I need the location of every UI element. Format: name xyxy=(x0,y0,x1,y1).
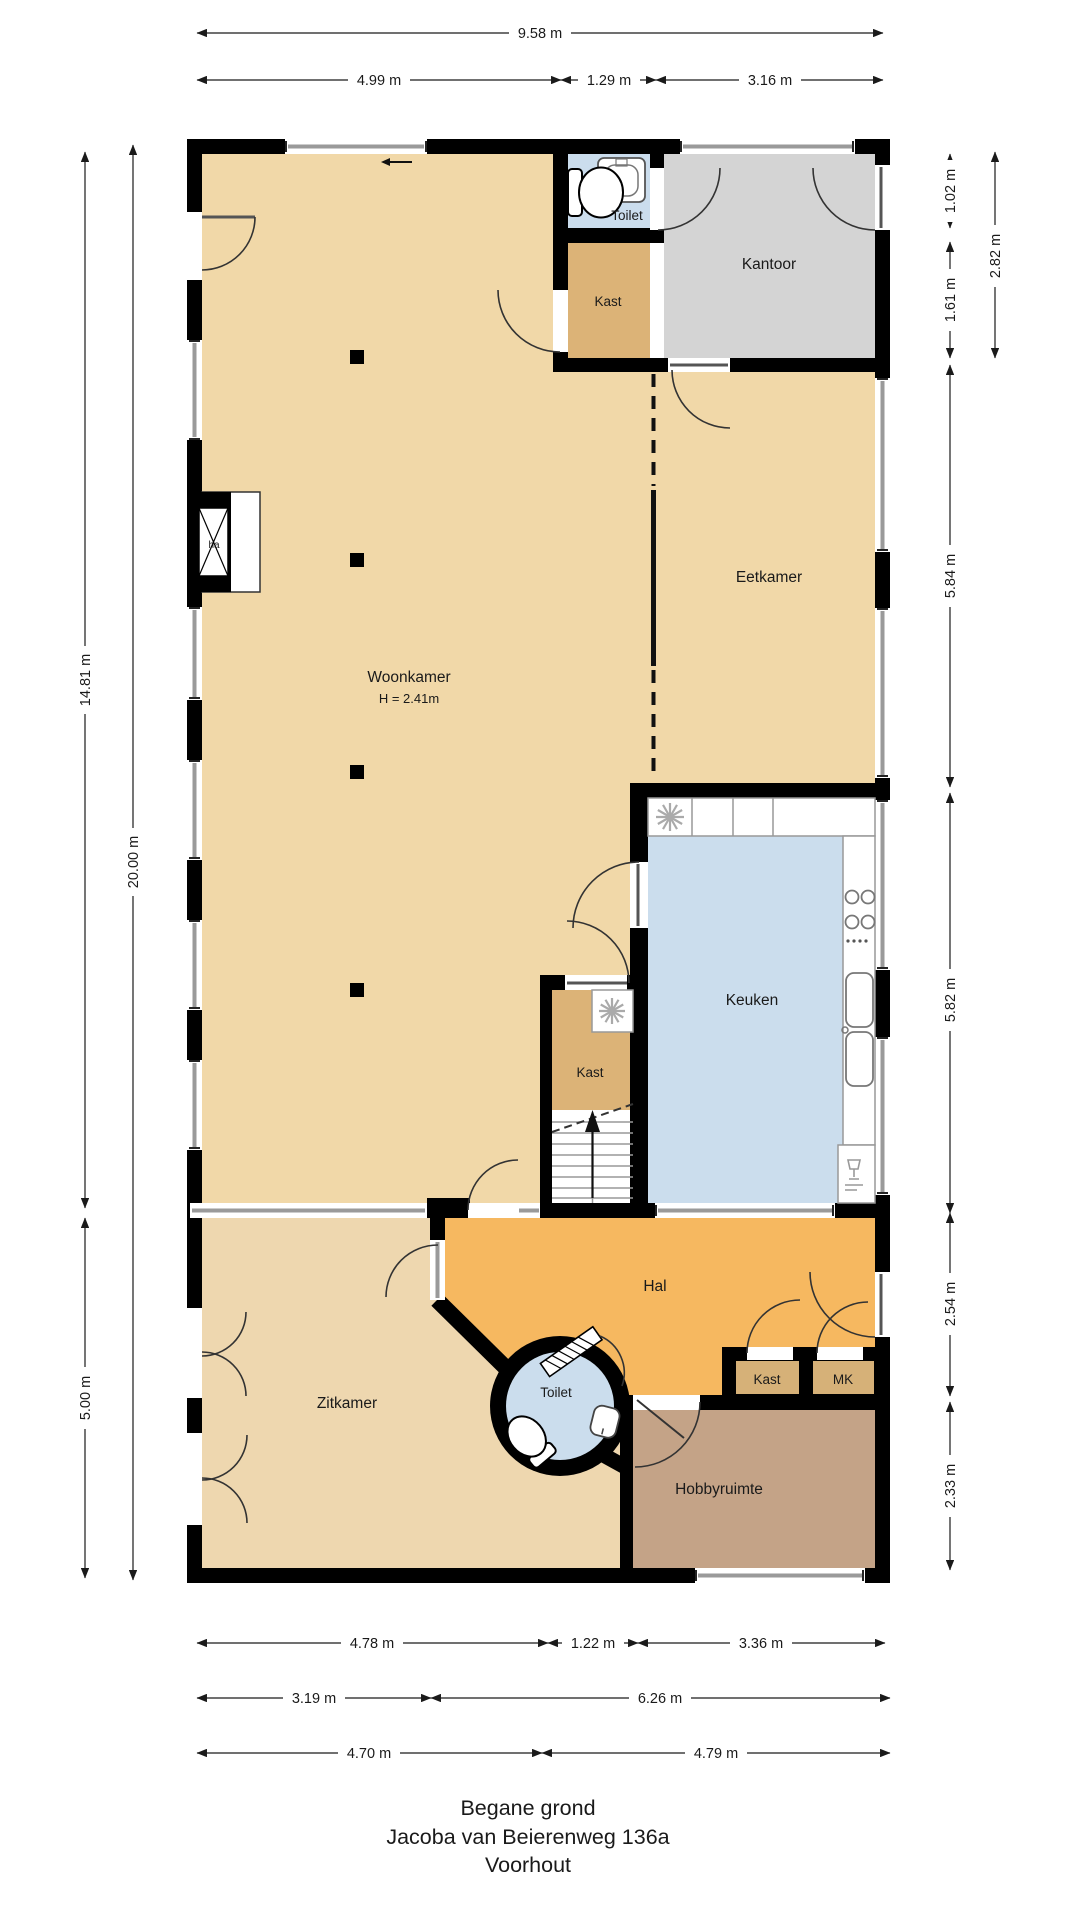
dimension-bottom-r3b: 4.79 m xyxy=(542,1744,890,1763)
room-label-woonkamer: Woonkamer xyxy=(367,669,450,686)
dishwasher-icon xyxy=(838,1145,875,1203)
svg-text:20.00 m: 20.00 m xyxy=(126,836,142,888)
dimension-right-1: 1.02 m xyxy=(941,154,960,228)
interior-window xyxy=(430,1240,445,1300)
floor-title: Begane grond xyxy=(460,1796,595,1820)
dimension-top-right: 3.16 m xyxy=(656,71,883,90)
room-label-kantoor: Kantoor xyxy=(742,256,796,273)
window xyxy=(285,139,427,154)
room-label-keuken: Keuken xyxy=(726,992,779,1009)
dimension-right-2: 1.61 m xyxy=(941,242,960,358)
dimension-left-lower: 5.00 m xyxy=(76,1218,95,1578)
room-label-kast-boven: Kast xyxy=(594,294,621,309)
window xyxy=(875,608,890,778)
title-block: Begane grond Jacoba van Beierenweg 136a … xyxy=(386,1796,669,1877)
room-label-kast-midden: Kast xyxy=(576,1065,603,1080)
svg-text:2.33 m: 2.33 m xyxy=(943,1464,959,1508)
dimension-bottom-r1b: 1.22 m xyxy=(548,1634,638,1653)
room-label-mk: MK xyxy=(833,1372,853,1387)
svg-text:4.79 m: 4.79 m xyxy=(694,1746,738,1762)
window xyxy=(187,760,202,860)
dimension-top-total: 9.58 m xyxy=(197,24,883,43)
interior-window xyxy=(190,1203,427,1218)
fireplace-label: ha xyxy=(208,540,220,551)
window xyxy=(187,340,202,440)
window xyxy=(875,378,890,552)
svg-text:6.26 m: 6.26 m xyxy=(638,1691,682,1707)
svg-text:1.02 m: 1.02 m xyxy=(943,169,959,213)
dimension-right-4: 5.82 m xyxy=(941,793,960,1213)
dimension-right-6: 2.33 m xyxy=(941,1402,960,1570)
window xyxy=(695,1568,865,1583)
floorplan-drawing: Woonkamer H = 2.41m Eetkamer Kantoor Toi… xyxy=(0,0,1080,1920)
city-line: Voorhout xyxy=(485,1853,571,1877)
dimension-left-upper: 14.81 m xyxy=(76,152,95,1208)
dimension-right-12: 2.82 m xyxy=(986,152,1005,358)
dimension-bottom-r2b: 6.26 m xyxy=(431,1689,890,1708)
svg-text:4.99 m: 4.99 m xyxy=(357,73,401,89)
dimension-top-left: 4.99 m xyxy=(197,71,561,90)
structural-column xyxy=(350,350,364,364)
window xyxy=(187,1060,202,1150)
svg-text:5.84 m: 5.84 m xyxy=(943,554,959,598)
interior-window xyxy=(518,1203,540,1218)
svg-text:2.82 m: 2.82 m xyxy=(988,234,1004,278)
svg-text:2.54 m: 2.54 m xyxy=(943,1282,959,1326)
room-label-kast-hal: Kast xyxy=(753,1372,780,1387)
svg-text:4.70 m: 4.70 m xyxy=(347,1746,391,1762)
dimension-top-mid: 1.29 m xyxy=(561,71,656,90)
address-line: Jacoba van Beierenweg 136a xyxy=(386,1825,669,1849)
svg-text:3.19 m: 3.19 m xyxy=(292,1691,336,1707)
room-label-toilet-hal: Toilet xyxy=(540,1385,572,1400)
svg-text:1.29 m: 1.29 m xyxy=(587,73,631,89)
svg-text:1.22 m: 1.22 m xyxy=(571,1636,615,1652)
structural-column xyxy=(350,765,364,779)
svg-text:3.16 m: 3.16 m xyxy=(748,73,792,89)
room-label-hal: Hal xyxy=(643,1278,666,1295)
structural-column xyxy=(350,983,364,997)
window xyxy=(875,1037,890,1195)
floorplan-page: Woonkamer H = 2.41m Eetkamer Kantoor Toi… xyxy=(0,0,1080,1920)
room-height-note: H = 2.41m xyxy=(379,691,439,706)
svg-text:4.78 m: 4.78 m xyxy=(350,1636,394,1652)
interior-window xyxy=(655,1203,835,1218)
window xyxy=(187,607,202,700)
svg-text:5.00 m: 5.00 m xyxy=(78,1376,94,1420)
dimension-left-total: 20.00 m xyxy=(124,145,143,1580)
room-label-toilet-boven: Toilet xyxy=(611,208,643,223)
dimension-bottom-r3a: 4.70 m xyxy=(197,1744,542,1763)
dimension-bottom-r1a: 4.78 m xyxy=(197,1634,548,1653)
svg-text:1.61 m: 1.61 m xyxy=(943,278,959,322)
fireplace-icon xyxy=(187,492,260,592)
dimension-right-3: 5.84 m xyxy=(941,365,960,787)
svg-text:5.82 m: 5.82 m xyxy=(943,978,959,1022)
closet-fan xyxy=(592,990,633,1032)
svg-text:9.58 m: 9.58 m xyxy=(518,26,562,42)
dimension-right-5: 2.54 m xyxy=(941,1213,960,1396)
structural-column xyxy=(350,553,364,567)
dimension-bottom-r1c: 3.36 m xyxy=(638,1634,885,1653)
room-label-eetkamer: Eetkamer xyxy=(736,569,802,586)
dimension-bottom-r2a: 3.19 m xyxy=(197,1689,431,1708)
room-label-zitkamer: Zitkamer xyxy=(317,1395,377,1412)
svg-text:14.81 m: 14.81 m xyxy=(78,654,94,706)
svg-text:3.36 m: 3.36 m xyxy=(739,1636,783,1652)
room-label-hobbyruimte: Hobbyruimte xyxy=(675,1481,763,1498)
window xyxy=(187,920,202,1010)
window xyxy=(875,800,890,970)
window xyxy=(680,139,855,154)
